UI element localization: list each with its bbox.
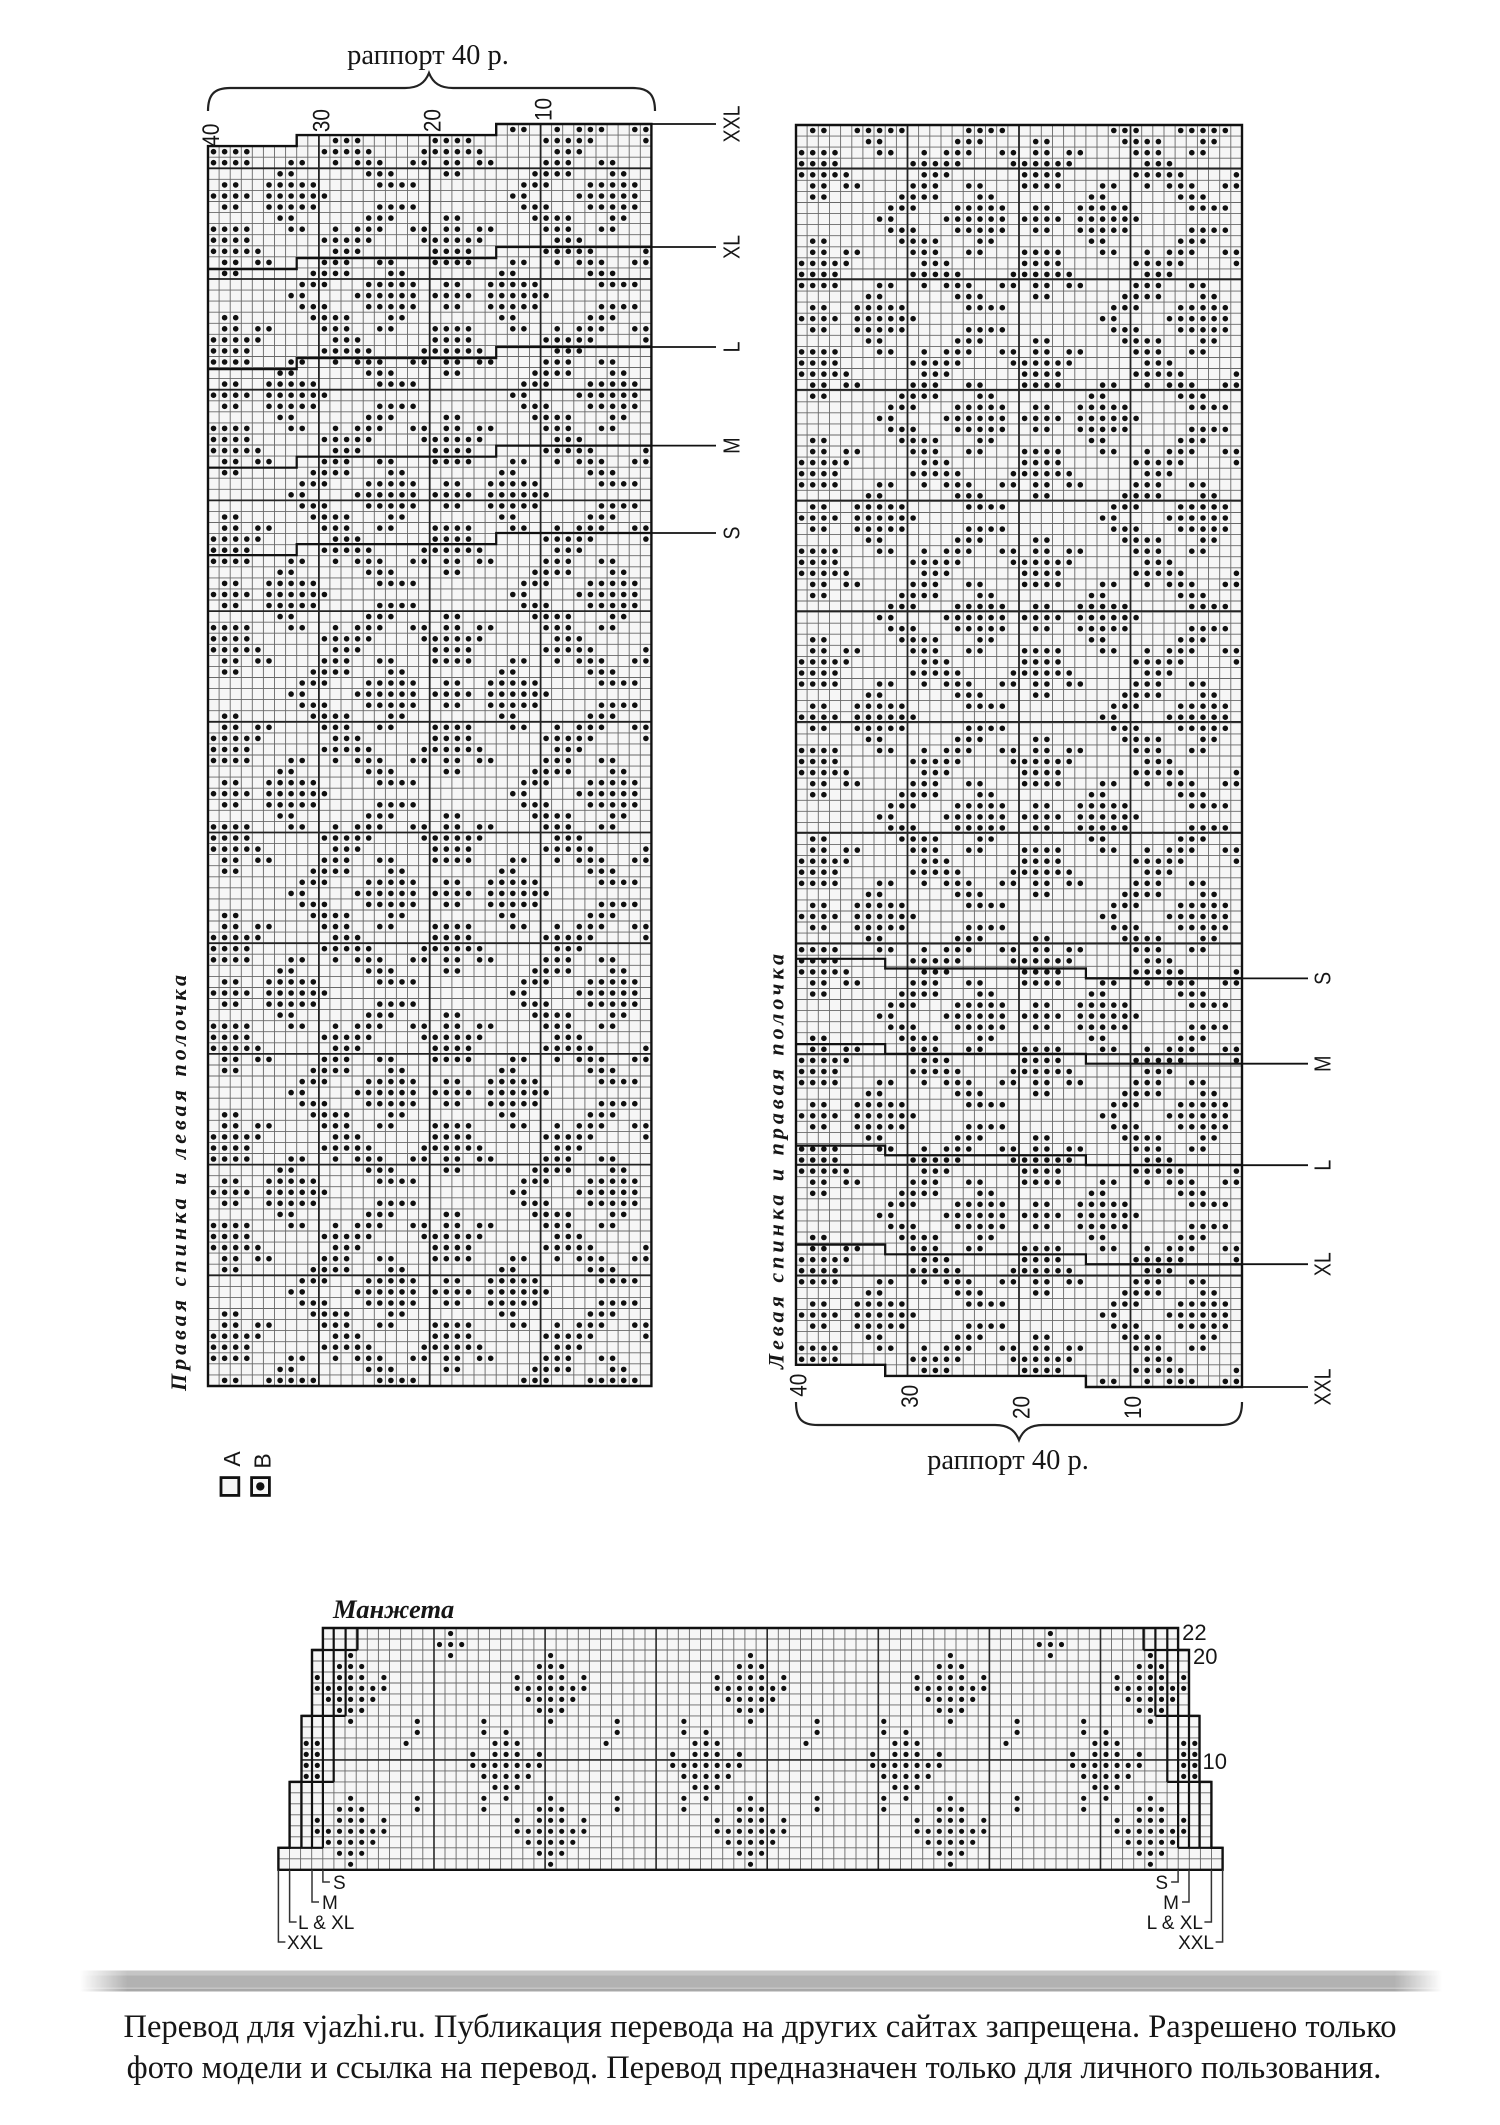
- svg-text:M: M: [1309, 1055, 1335, 1072]
- svg-text:B: B: [250, 1453, 276, 1468]
- svg-text:XXL: XXL: [1309, 1369, 1335, 1406]
- svg-text:22: 22: [1182, 1620, 1206, 1645]
- svg-text:20: 20: [420, 109, 447, 132]
- svg-text:S: S: [1155, 1873, 1168, 1894]
- svg-text:раппорт 40 р.: раппорт 40 р.: [927, 1445, 1089, 1476]
- svg-text:XL: XL: [718, 235, 744, 259]
- svg-text:40: 40: [786, 1374, 813, 1397]
- svg-text:раппорт 40 р.: раппорт 40 р.: [347, 40, 509, 71]
- svg-text:L: L: [1309, 1160, 1335, 1171]
- svg-text:XXL: XXL: [287, 1933, 323, 1954]
- svg-text:30: 30: [897, 1385, 924, 1408]
- svg-text:Перевод для vjazhi.ru. Публика: Перевод для vjazhi.ru. Публикация перево…: [124, 2009, 1397, 2045]
- svg-text:M: M: [718, 437, 744, 454]
- svg-text:20: 20: [1009, 1396, 1036, 1419]
- svg-text:L: L: [718, 342, 744, 353]
- svg-text:Правая спинка и левая полочка: Правая спинка и левая полочка: [166, 971, 191, 1392]
- svg-text:10: 10: [1120, 1396, 1147, 1419]
- svg-text:10: 10: [530, 98, 557, 121]
- svg-text:M: M: [1163, 1893, 1179, 1914]
- svg-text:A: A: [219, 1451, 245, 1467]
- svg-text:S: S: [1309, 972, 1335, 985]
- svg-text:XXL: XXL: [718, 106, 744, 143]
- svg-text:L & XL: L & XL: [298, 1913, 354, 1934]
- svg-text:XL: XL: [1309, 1252, 1335, 1276]
- svg-text:20: 20: [1193, 1644, 1217, 1669]
- svg-text:Левая спинка и правая полочка: Левая спинка и правая полочка: [764, 950, 789, 1370]
- svg-text:XXL: XXL: [1178, 1933, 1214, 1954]
- svg-text:10: 10: [1203, 1749, 1227, 1774]
- svg-text:M: M: [322, 1893, 338, 1914]
- svg-text:S: S: [718, 527, 744, 540]
- svg-text:L & XL: L & XL: [1147, 1913, 1203, 1934]
- svg-text:фото модели и ссылка на перево: фото модели и ссылка на перевод. Перевод…: [127, 2050, 1382, 2086]
- svg-text:Манжета: Манжета: [332, 1594, 454, 1624]
- svg-text:30: 30: [309, 109, 336, 132]
- svg-text:S: S: [333, 1873, 346, 1894]
- svg-text:40: 40: [198, 124, 225, 147]
